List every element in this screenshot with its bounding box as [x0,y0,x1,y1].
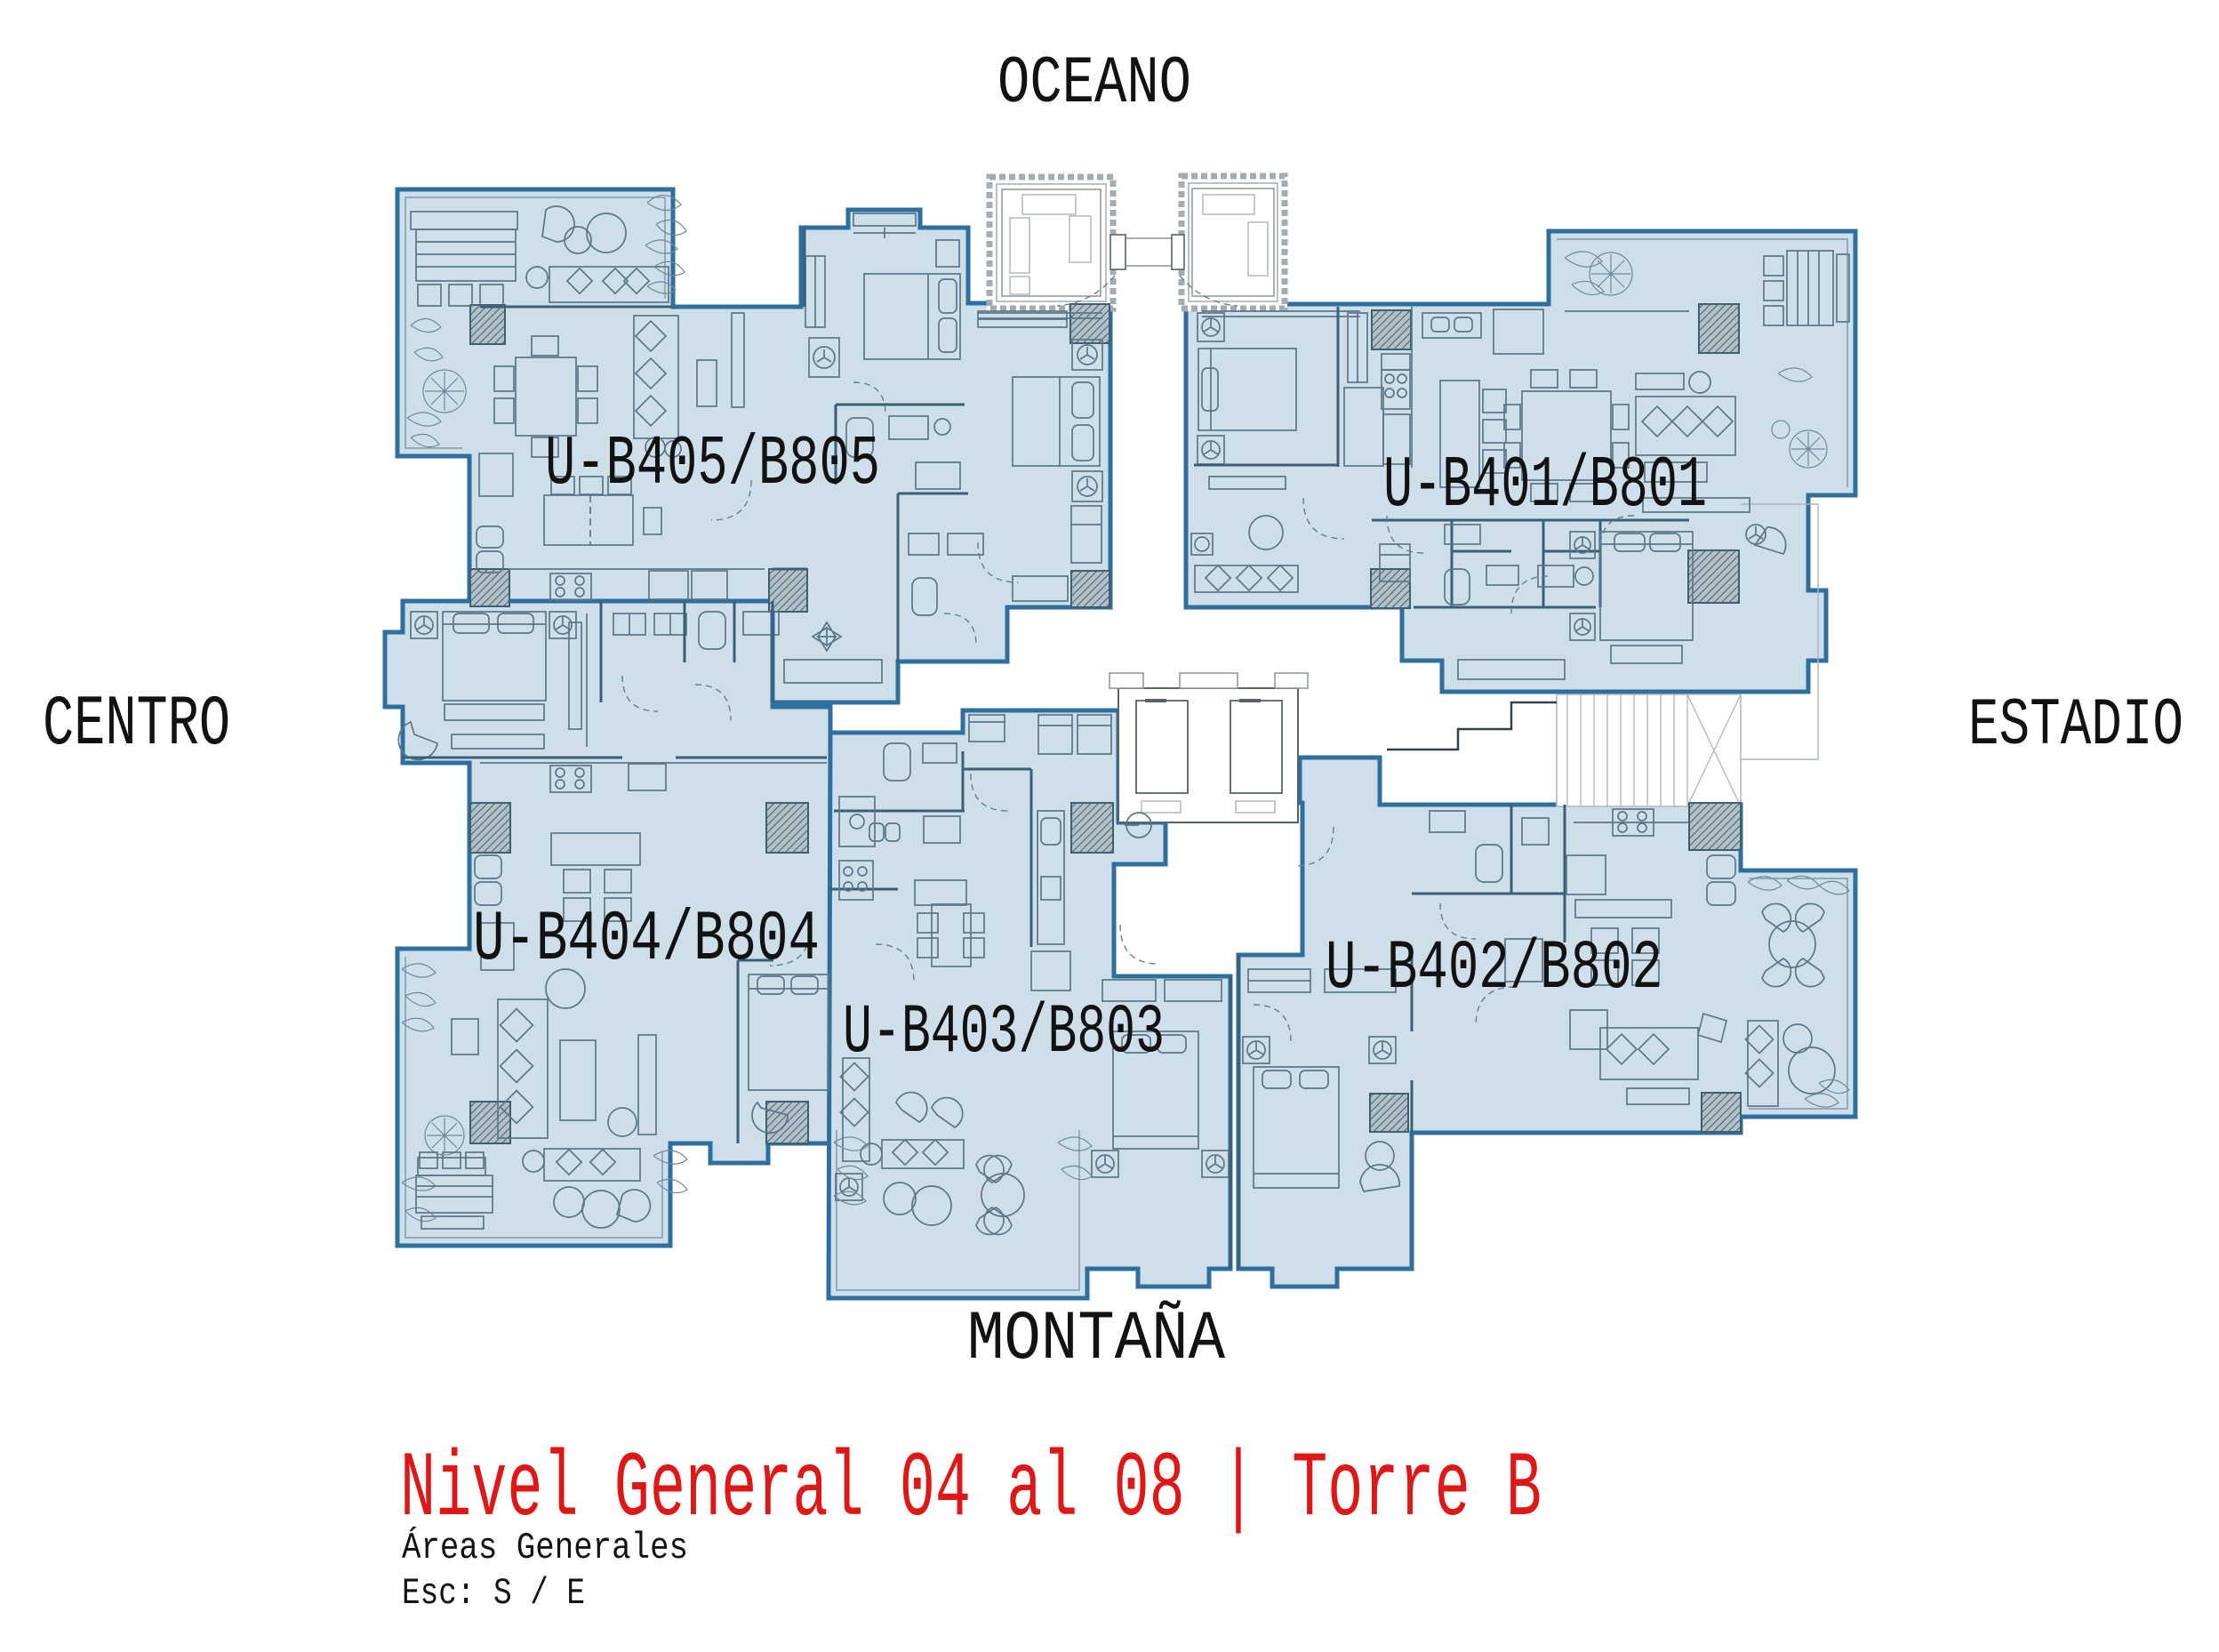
svg-text:U-B405/B805: U-B405/B805 [545,424,880,504]
svg-text:Esc: S / E: Esc: S / E [402,1572,585,1615]
svg-text:U-B401/B801: U-B401/B801 [1383,445,1707,527]
svg-text:U-B402/B802: U-B402/B802 [1326,930,1662,1008]
svg-text:Áreas Generales: Áreas Generales [402,1526,688,1569]
svg-text:ESTADIO: ESTADIO [1968,688,2183,764]
svg-text:CENTRO: CENTRO [43,685,230,766]
svg-text:MONTAÑA: MONTAÑA [967,1300,1225,1379]
svg-text:U-B403/B803: U-B403/B803 [843,994,1165,1072]
svg-text:OCEANO: OCEANO [997,46,1191,122]
svg-text:U-B404/B804: U-B404/B804 [473,900,820,981]
